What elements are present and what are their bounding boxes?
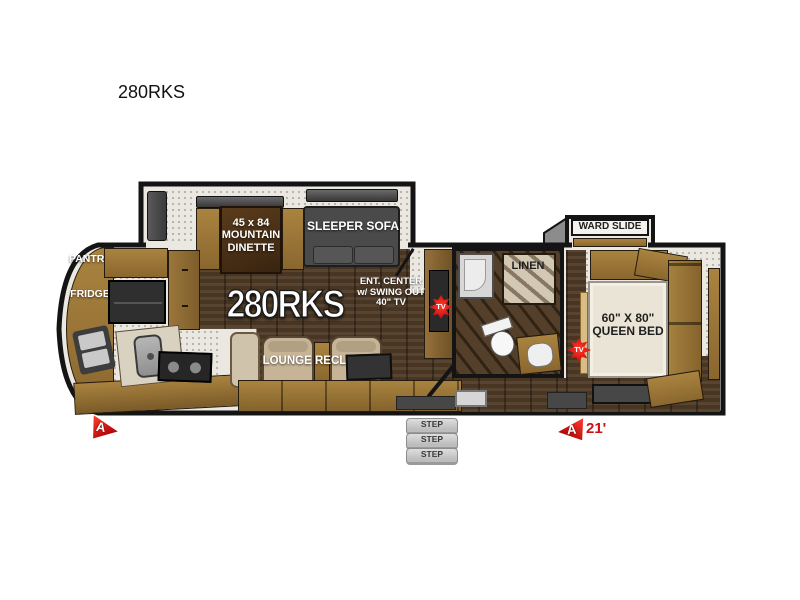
kitchen-overhead-cabinet: [104, 248, 168, 278]
refrigerator: [108, 280, 166, 324]
bath-vanity: [516, 333, 562, 375]
stove-cooktop: [157, 351, 212, 383]
ottoman-table: [346, 353, 393, 381]
sleeper-sofa: [303, 206, 400, 267]
sofa-cushion-left: [313, 246, 353, 264]
entry-mat-left: [396, 396, 456, 410]
rear-length-label: 21': [586, 420, 606, 437]
sleeper-sofa-label: SLEEPER SOFA: [303, 220, 403, 233]
kitchen-tall-pantry: [168, 250, 200, 330]
entry-mat-light: [455, 390, 487, 407]
tv-badge-living: TV: [436, 302, 446, 311]
entry-steps: STEP STEP STEP: [406, 418, 456, 464]
step-3: STEP: [406, 448, 458, 465]
linen-label: LINEN: [496, 260, 560, 272]
slide-side-window: [147, 191, 167, 241]
model-number-floor-text: 280RKS: [210, 281, 360, 326]
ward-slide-cabinet: [573, 238, 647, 247]
ward-slide-label: WARD SLIDE: [571, 221, 649, 232]
entry-mat-right: [547, 392, 587, 409]
queen-bed-label: 60" X 80" QUEEN BED: [590, 312, 666, 339]
tv-location-icon-living: TV: [429, 295, 453, 319]
rear-wall-cabinet: [708, 268, 720, 380]
sofa-cushion-right: [354, 246, 394, 264]
floorplan-canvas: 280RKS 45 x 84 MOUNTAIN DINETTE SLEEPER …: [0, 0, 800, 600]
dinette-label: 45 x 84 MOUNTAIN DINETTE: [198, 217, 304, 254]
tv-badge-bedroom: TV: [574, 345, 584, 354]
shower: [458, 253, 494, 299]
bedroom-wardrobe: [668, 260, 702, 382]
bedroom-dresser-tv: [592, 384, 654, 404]
ent-center-label: ENT. CENTER w/ SWING OUT 40" TV: [346, 277, 436, 309]
sofa-window: [306, 189, 398, 202]
bed-side-rail: [580, 292, 588, 374]
